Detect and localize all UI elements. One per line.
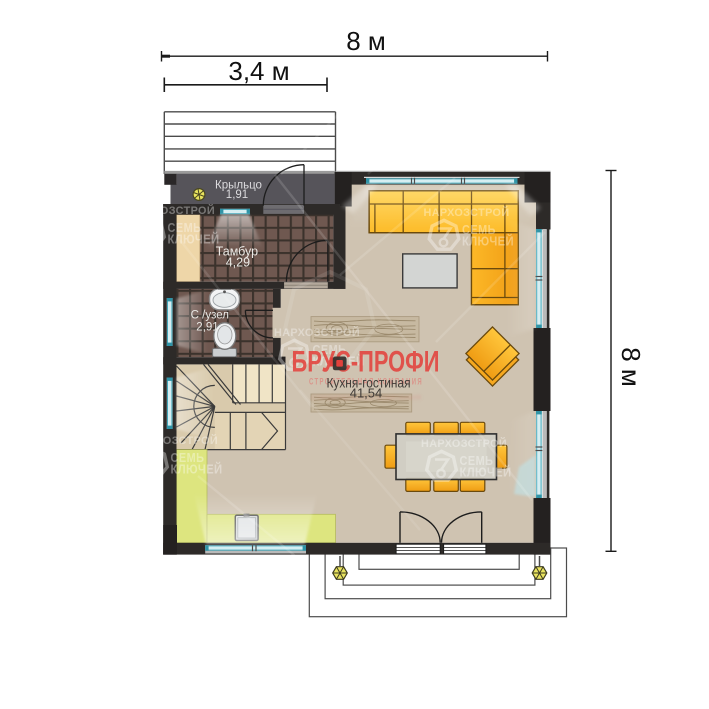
svg-text:КЛЮЧЕЙ: КЛЮЧЕЙ	[462, 234, 514, 249]
svg-text:БРУС-ПРОФИ: БРУС-ПРОФИ	[292, 346, 440, 379]
svg-text:С /узел: С /узел	[191, 310, 229, 322]
svg-text:8 м: 8 м	[616, 347, 646, 387]
svg-text:4,29: 4,29	[226, 256, 250, 270]
svg-text:КЛЮЧЕЙ: КЛЮЧЕЙ	[168, 232, 220, 247]
svg-text:3,4 м: 3,4 м	[228, 56, 289, 86]
svg-text:2,91: 2,91	[196, 322, 218, 334]
svg-text:КЛЮЧЕЙ: КЛЮЧЕЙ	[460, 465, 512, 480]
svg-text:НАРХОЗСТРОЙ: НАРХОЗСТРОЙ	[421, 437, 507, 450]
svg-text:41,54: 41,54	[350, 386, 383, 401]
svg-text:1,91: 1,91	[226, 189, 248, 201]
svg-text:НАРХОЗСТРОЙ: НАРХОЗСТРОЙ	[424, 206, 510, 219]
svg-text:8 м: 8 м	[346, 26, 386, 56]
svg-text:НАРХОЗСТРОЙ: НАРХОЗСТРОЙ	[274, 326, 360, 339]
svg-text:НАРХОЗСТРОЙ: НАРХОЗСТРОЙ	[132, 434, 218, 447]
svg-text:НАРХОЗСТРОЙ: НАРХОЗСТРОЙ	[129, 204, 215, 217]
svg-text:КЛЮЧЕЙ: КЛЮЧЕЙ	[171, 462, 223, 477]
